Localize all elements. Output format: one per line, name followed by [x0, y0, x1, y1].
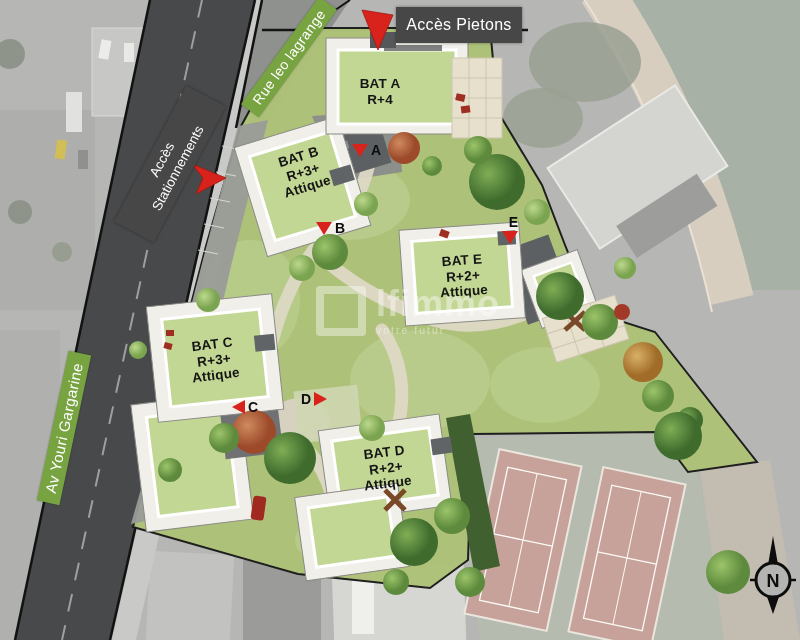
marker-c-arrow-icon: [232, 400, 245, 414]
bat-a-name: BAT A: [325, 76, 435, 92]
marker-d-letter: D: [301, 391, 311, 407]
pedestrian-access-label: Accès Pietons: [396, 7, 522, 43]
entrance-marker-d: D: [301, 391, 327, 407]
marker-e-letter: E: [509, 214, 518, 230]
entrance-marker-a: A: [352, 142, 381, 158]
entrance-marker-e: E: [502, 214, 518, 244]
label-bat-e: BAT E R+2+ Attique: [407, 249, 520, 303]
bat-a-floors: R+4: [325, 92, 435, 108]
marker-b-letter: B: [335, 220, 345, 236]
red-bench-1: [166, 330, 174, 336]
entrance-marker-c: C: [232, 399, 258, 415]
site-plan-image: Av Youri Gargarine Rue leo lagrange Accè…: [0, 0, 800, 640]
marker-c-letter: C: [248, 399, 258, 415]
marker-b-arrow-icon: [316, 222, 332, 235]
marker-a-arrow-icon: [352, 144, 368, 157]
entrance-marker-b: B: [316, 220, 345, 236]
marker-e-arrow-icon: [502, 231, 518, 244]
marker-a-letter: A: [371, 142, 381, 158]
label-bat-a: BAT A R+4: [325, 76, 435, 107]
north-compass-icon: N: [744, 532, 800, 626]
marker-d-arrow-icon: [314, 392, 327, 406]
compass-north-letter: N: [767, 571, 780, 591]
